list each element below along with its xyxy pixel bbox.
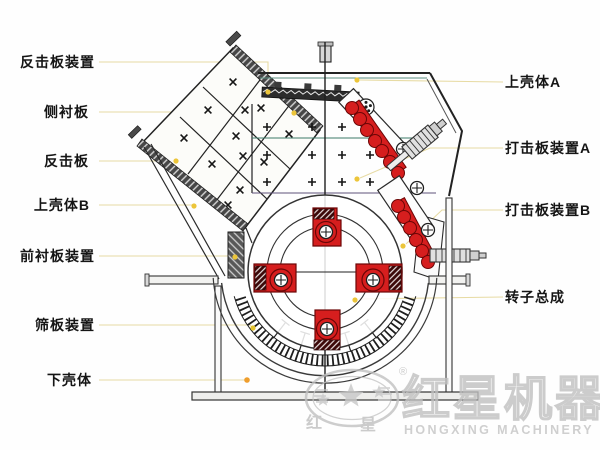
brand-cn: 红星机器	[402, 373, 600, 426]
hammer-right	[356, 264, 402, 292]
right-leg	[446, 198, 452, 394]
left-rail	[147, 276, 218, 284]
adjust-rod-b	[430, 249, 486, 262]
hinge-bolt-b	[411, 182, 424, 195]
left-leg	[215, 286, 221, 394]
hammer-left	[254, 264, 296, 292]
hammer-bottom	[314, 310, 340, 350]
brand-en: HONGXING MACHINERY	[404, 423, 594, 437]
label-impact-plate-device: 反击板装置	[20, 55, 95, 69]
watermark-logo: ® 红 星 红星机器 HONGXING MACHINERY	[306, 366, 600, 437]
impact-crusher-diagram: ® 红 星 红星机器 HONGXING MACHINERY 反击板装置 侧衬板 …	[0, 0, 600, 450]
side-bolt-b	[422, 224, 435, 237]
label-front-liner-device: 前衬板装置	[20, 249, 95, 263]
seal-char-right: 星	[360, 416, 376, 434]
label-upper-shell-a: 上壳体A	[505, 75, 561, 89]
label-upper-shell-b: 上壳体B	[34, 198, 90, 212]
label-side-liner: 侧衬板	[44, 105, 89, 119]
label-screen-device: 筛板装置	[35, 318, 95, 332]
seal-char-left: 红	[306, 413, 322, 432]
label-lower-shell: 下壳体	[47, 373, 92, 387]
label-blow-bar-device-a: 打击板装置A	[505, 141, 591, 155]
label-blow-bar-device-b: 打击板装置B	[505, 203, 591, 217]
hammer-top	[313, 208, 341, 246]
label-rotor-assembly: 转子总成	[505, 290, 565, 304]
impact-curtain-a	[339, 89, 412, 180]
label-impact-plate: 反击板	[44, 154, 89, 168]
